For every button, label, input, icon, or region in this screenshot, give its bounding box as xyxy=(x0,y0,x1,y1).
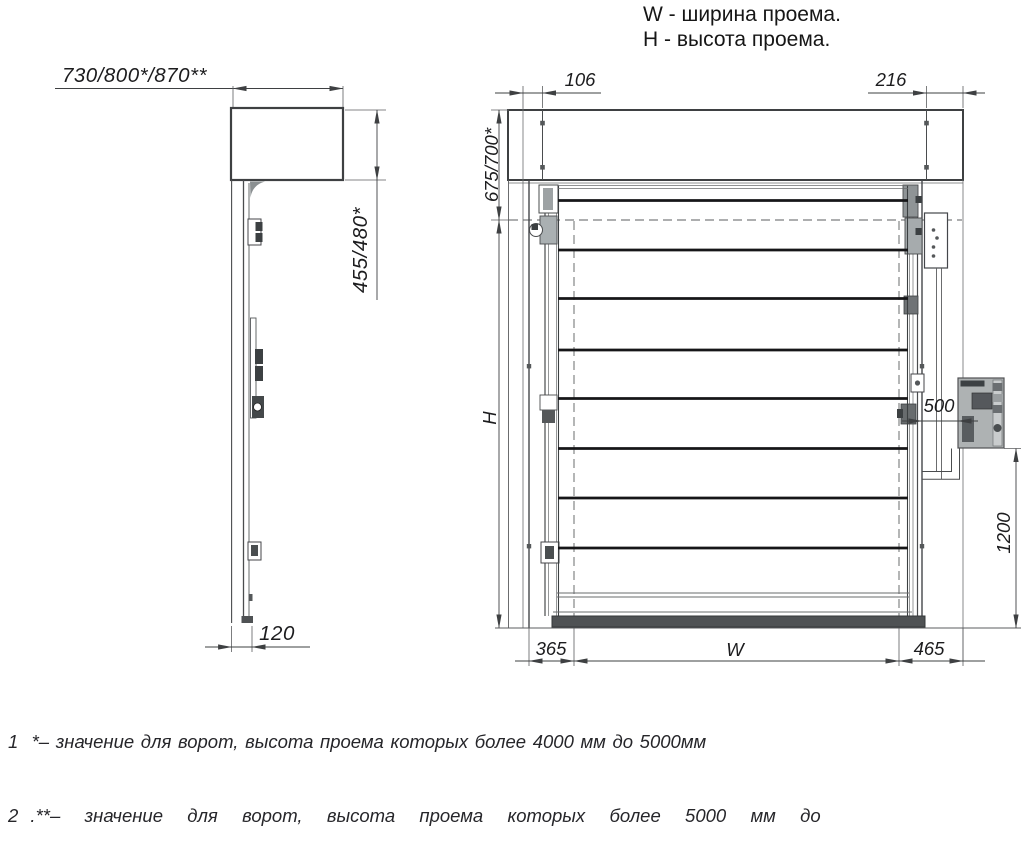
dim-side-box-height-label: 455/480* xyxy=(349,206,372,293)
dim-front-bottom: 365 W 465 xyxy=(515,628,985,666)
fastener xyxy=(920,544,924,548)
dim-side-depth: 730/800*/870** xyxy=(55,64,343,107)
fastener xyxy=(924,165,929,170)
fastener xyxy=(540,121,545,126)
dim-front-control-offset-label: 500 xyxy=(924,395,956,416)
dim-front-opening-height-label: H xyxy=(479,411,500,425)
bracket-tab xyxy=(532,224,539,230)
bottom-bar xyxy=(552,593,925,627)
rail-foot xyxy=(242,616,254,623)
rail-bottom-bracket-dark xyxy=(545,546,554,559)
legend-height: H - высота проема. xyxy=(643,27,841,52)
drawing-sheet: W - ширина проема. H - высота проема. 73… xyxy=(0,0,1024,866)
head-box-side xyxy=(231,108,343,180)
motor-vent xyxy=(935,236,939,240)
rail-mid-bracket-dark xyxy=(542,410,555,423)
guide-rail-side xyxy=(232,180,265,623)
motor-vent xyxy=(932,228,936,232)
control-box-button xyxy=(993,383,1003,391)
motor-vent xyxy=(932,245,936,249)
dim-front-opening-width-label: W xyxy=(726,639,745,660)
legend-width: W - ширина проема. xyxy=(643,2,841,27)
dim-side-depth-label: 730/800*/870** xyxy=(62,64,207,87)
rail-gusset xyxy=(250,182,265,199)
dim-front-right-offset-label: 216 xyxy=(875,69,908,90)
dim-front-right-margin-label: 465 xyxy=(914,638,946,659)
bracket-tab xyxy=(916,196,922,203)
bracket-tab xyxy=(916,228,922,235)
dim-front-header-height-label: 675/700* xyxy=(481,127,502,202)
bracket-tab xyxy=(256,233,263,242)
dim-front-control-height: 1200 xyxy=(993,449,1021,629)
rail-tick xyxy=(249,594,253,601)
fastener xyxy=(540,165,545,170)
bottom-profile xyxy=(552,616,925,627)
rail-mid-bracket xyxy=(540,395,557,410)
dim-side-box-height: 455/480* xyxy=(345,110,386,300)
bracket-tab xyxy=(897,409,903,418)
note-2: 2 .**– значение для ворот, высота проема… xyxy=(8,804,833,829)
control-box-button xyxy=(993,394,1003,402)
bracket-tab xyxy=(256,222,263,231)
control-box-button xyxy=(993,405,1003,413)
motor-vent xyxy=(932,254,936,258)
side-view-drawing: 730/800*/870** 455/480* xyxy=(55,64,386,652)
door-curtain xyxy=(558,186,908,618)
guide-rail-left xyxy=(527,180,559,628)
dim-front-left-offset-label: 106 xyxy=(565,69,597,90)
fastener xyxy=(527,364,531,368)
fastener xyxy=(527,544,531,548)
control-box-knob xyxy=(994,424,1002,432)
fastener xyxy=(920,364,924,368)
motor-unit xyxy=(925,213,948,268)
dim-front-header-height: 675/700* xyxy=(481,110,509,220)
bracket-tab xyxy=(255,349,263,364)
legend: W - ширина проема. H - высота проема. xyxy=(643,2,841,52)
control-box-label xyxy=(961,381,985,387)
cable xyxy=(922,449,960,480)
fastener xyxy=(924,121,929,126)
rail-top-bracket-plate xyxy=(543,188,553,210)
dim-side-rail-depth-label: 120 xyxy=(259,622,295,645)
front-view-drawing: 106 216 xyxy=(479,69,1021,666)
head-box-front xyxy=(508,110,963,183)
dim-front-control-height-label: 1200 xyxy=(993,512,1014,554)
dim-front-left-offset: 106 xyxy=(495,69,601,108)
control-box-display xyxy=(972,393,992,409)
dim-side-rail-depth: 120 xyxy=(205,622,310,652)
bracket-tab xyxy=(255,366,263,381)
note-1: 1 *– значение для ворот, высота проема к… xyxy=(8,730,833,755)
dim-front-right-offset: 216 xyxy=(868,69,985,108)
dim-front-opening-height: H xyxy=(479,220,500,628)
photocell-lens xyxy=(915,380,920,385)
footnotes: 1 *– значение для ворот, высота проема к… xyxy=(8,681,833,866)
roller-hole xyxy=(254,403,262,411)
control-box-slot xyxy=(962,416,974,442)
dim-front-left-margin-label: 365 xyxy=(536,638,568,659)
opening-dashed-lines xyxy=(509,220,962,628)
bracket-tab xyxy=(251,545,258,556)
